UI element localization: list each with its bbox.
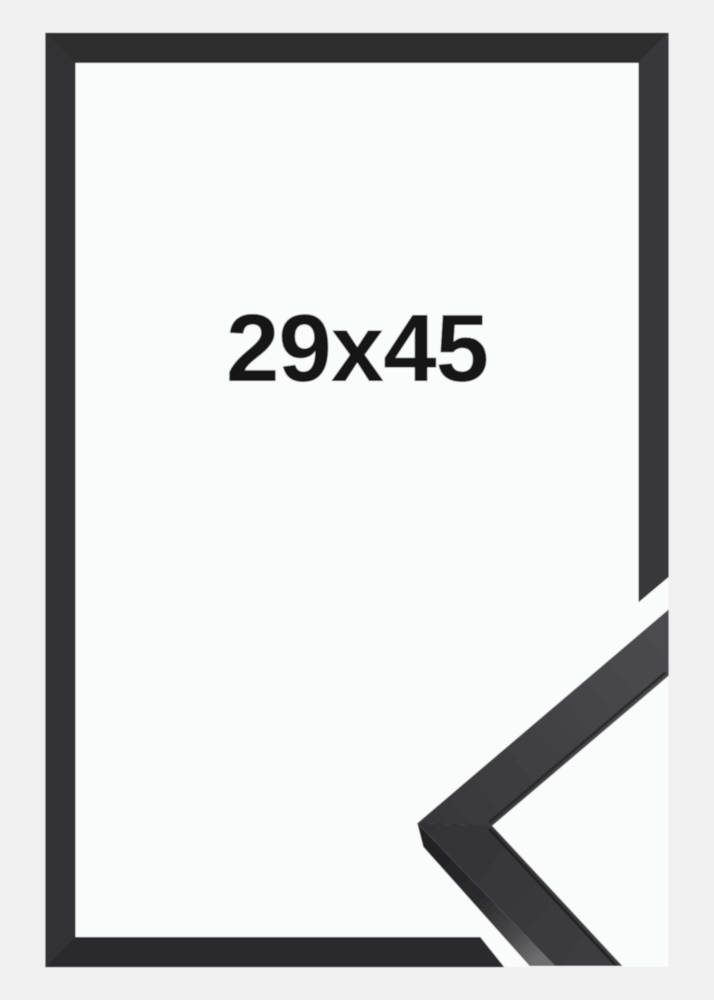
svg-text:29x45: 29x45	[226, 295, 488, 402]
